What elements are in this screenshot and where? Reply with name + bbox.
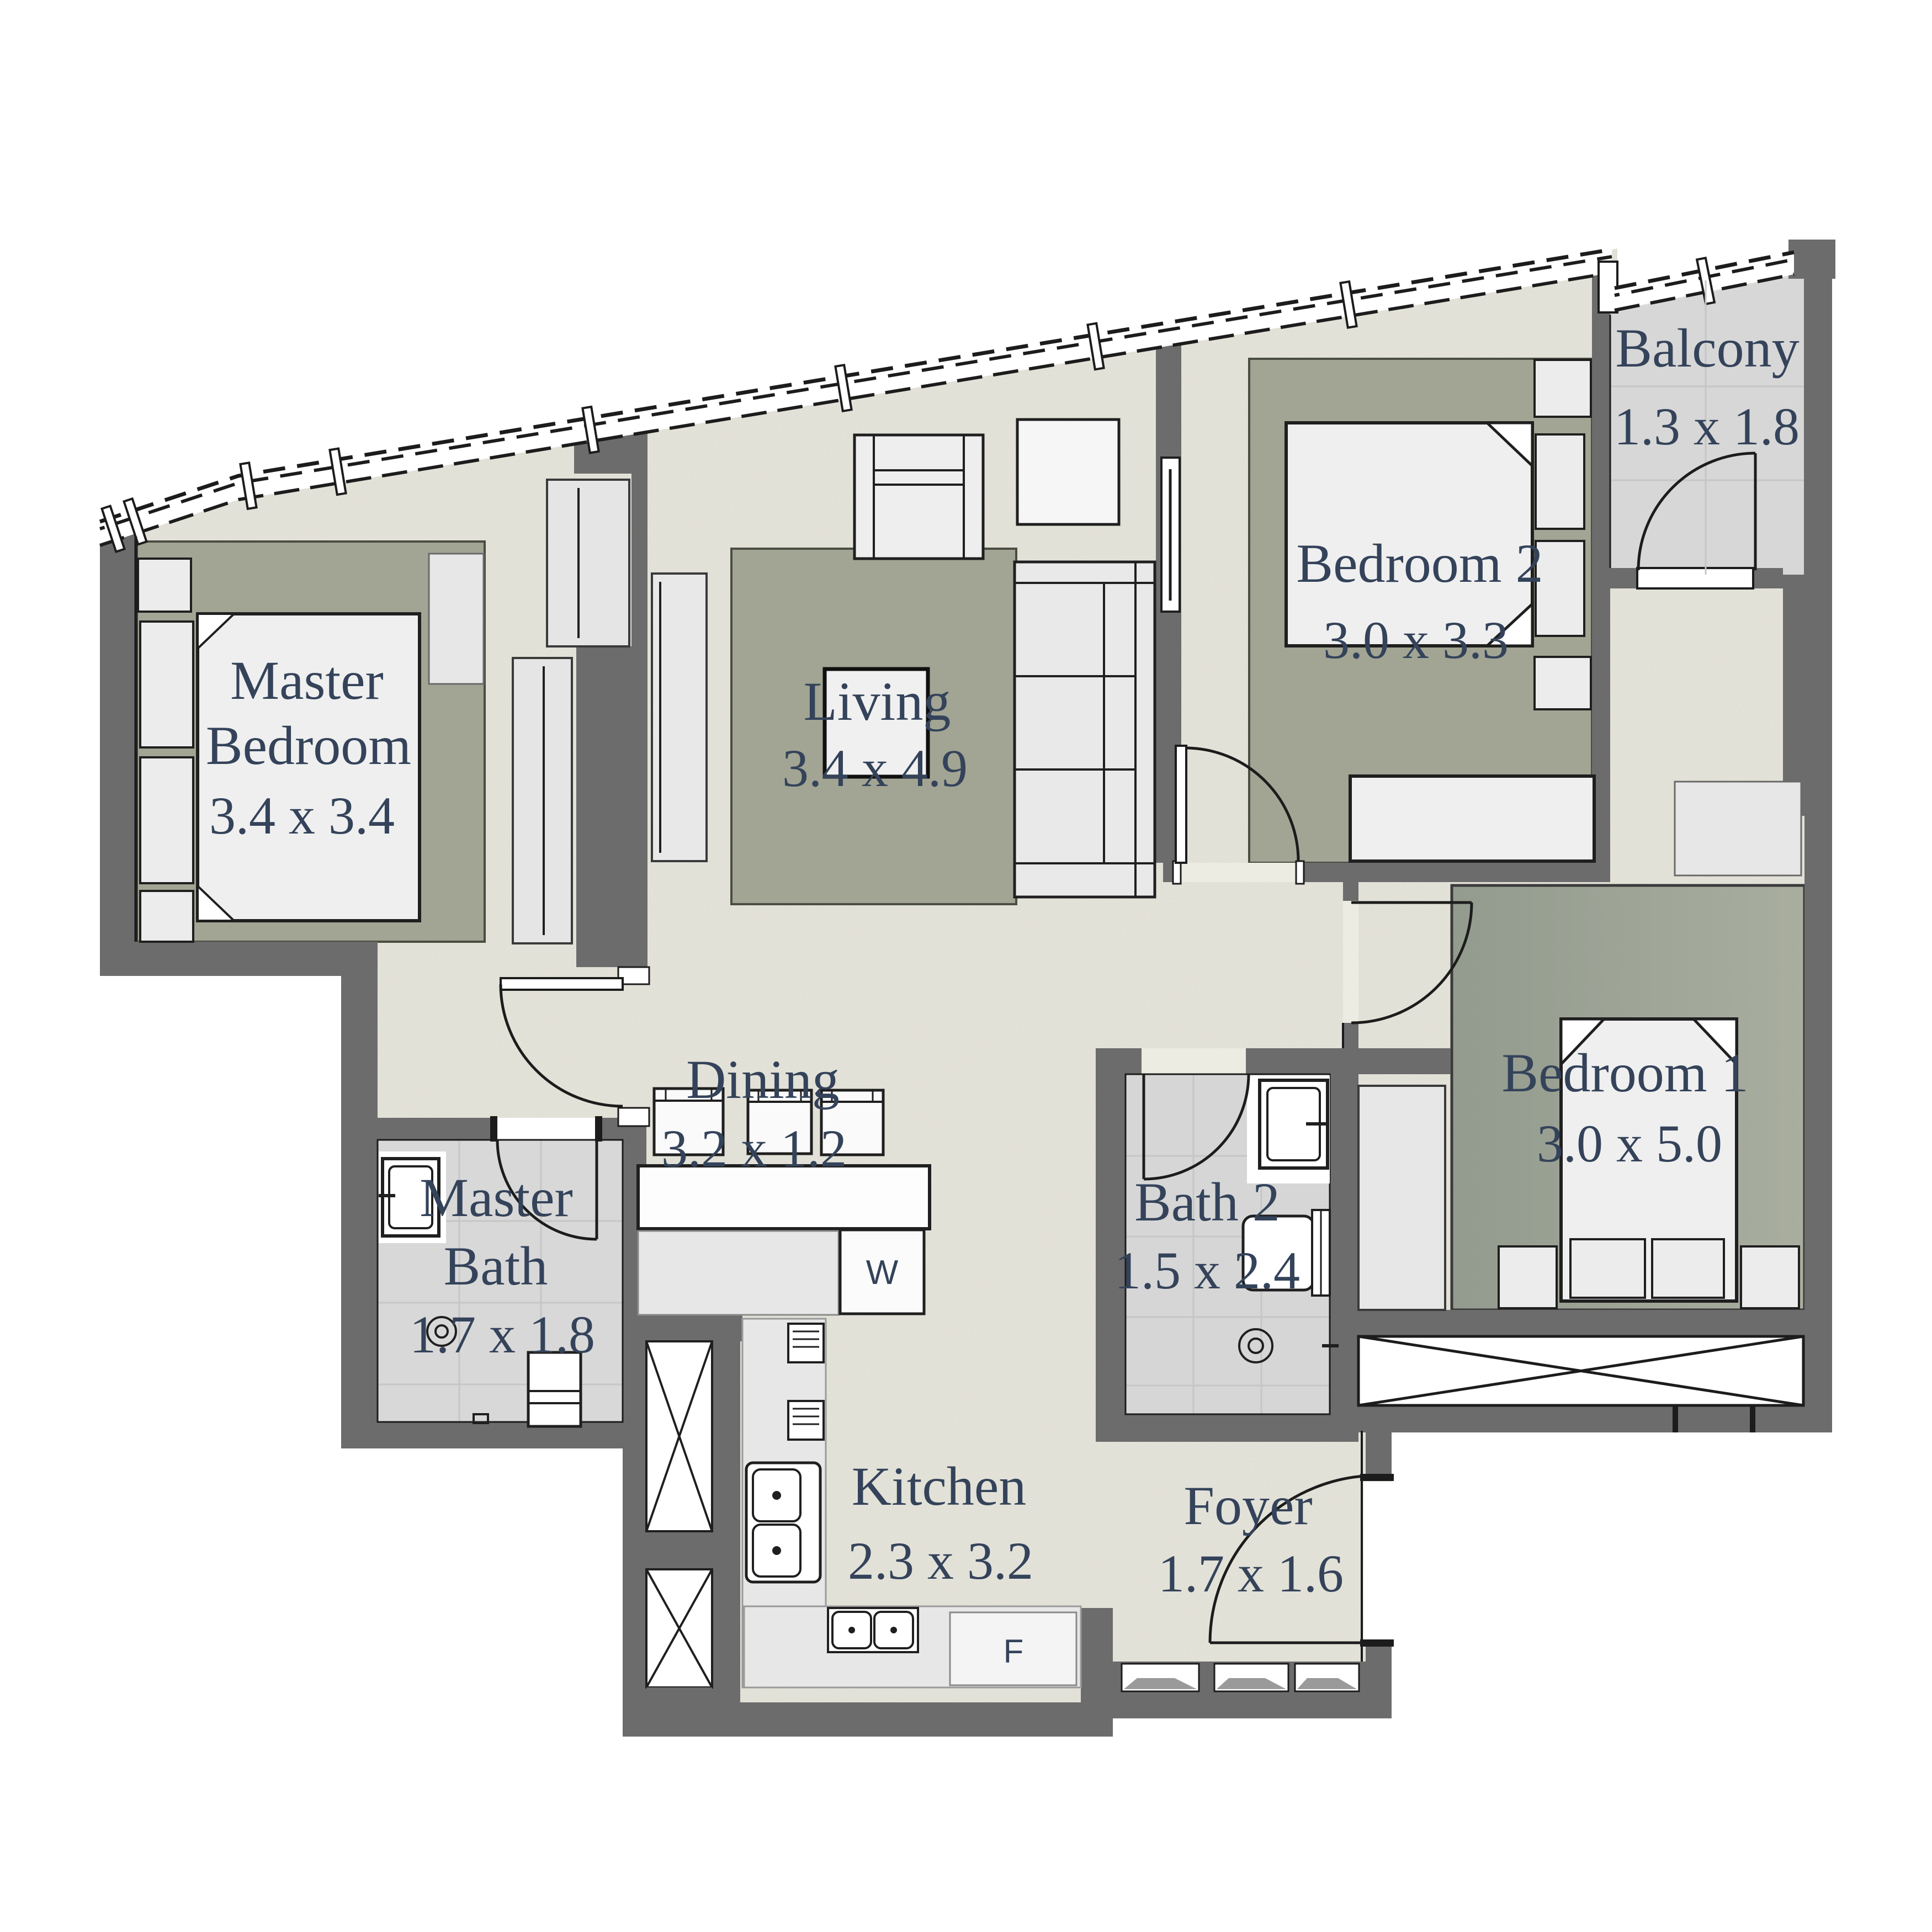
svg-text:3.0 x 3.3: 3.0 x 3.3 bbox=[1323, 611, 1509, 670]
svg-text:1.7 x 1.6: 1.7 x 1.6 bbox=[1158, 1544, 1344, 1603]
svg-text:3.0 x 5.0: 3.0 x 5.0 bbox=[1537, 1114, 1722, 1173]
svg-text:3.2 x 1.2: 3.2 x 1.2 bbox=[661, 1119, 847, 1178]
svg-text:Bedroom: Bedroom bbox=[206, 715, 411, 776]
svg-text:Bedroom 1: Bedroom 1 bbox=[1501, 1042, 1748, 1103]
svg-text:W: W bbox=[866, 1254, 899, 1292]
svg-text:1.3 x 1.8: 1.3 x 1.8 bbox=[1614, 397, 1800, 456]
svg-text:Balcony: Balcony bbox=[1615, 317, 1799, 379]
svg-text:Bath: Bath bbox=[444, 1235, 548, 1297]
svg-text:Living: Living bbox=[804, 671, 951, 732]
svg-text:1.7 x 1.8: 1.7 x 1.8 bbox=[410, 1305, 595, 1364]
svg-text:Master: Master bbox=[420, 1167, 573, 1228]
svg-text:Bath 2: Bath 2 bbox=[1134, 1171, 1280, 1233]
svg-text:3.4 x 3.4: 3.4 x 3.4 bbox=[209, 786, 395, 845]
svg-text:2.3 x 3.2: 2.3 x 3.2 bbox=[848, 1531, 1033, 1590]
svg-text:Kitchen: Kitchen bbox=[852, 1456, 1027, 1517]
svg-text:1.5 x 2.4: 1.5 x 2.4 bbox=[1114, 1241, 1300, 1300]
svg-text:Bedroom 2: Bedroom 2 bbox=[1296, 533, 1543, 594]
svg-text:Foyer: Foyer bbox=[1183, 1475, 1312, 1536]
svg-text:Dining: Dining bbox=[686, 1049, 840, 1110]
svg-text:3.4 x 4.9: 3.4 x 4.9 bbox=[782, 739, 968, 798]
svg-text:Master: Master bbox=[230, 650, 384, 711]
svg-text:F: F bbox=[1004, 1633, 1024, 1670]
